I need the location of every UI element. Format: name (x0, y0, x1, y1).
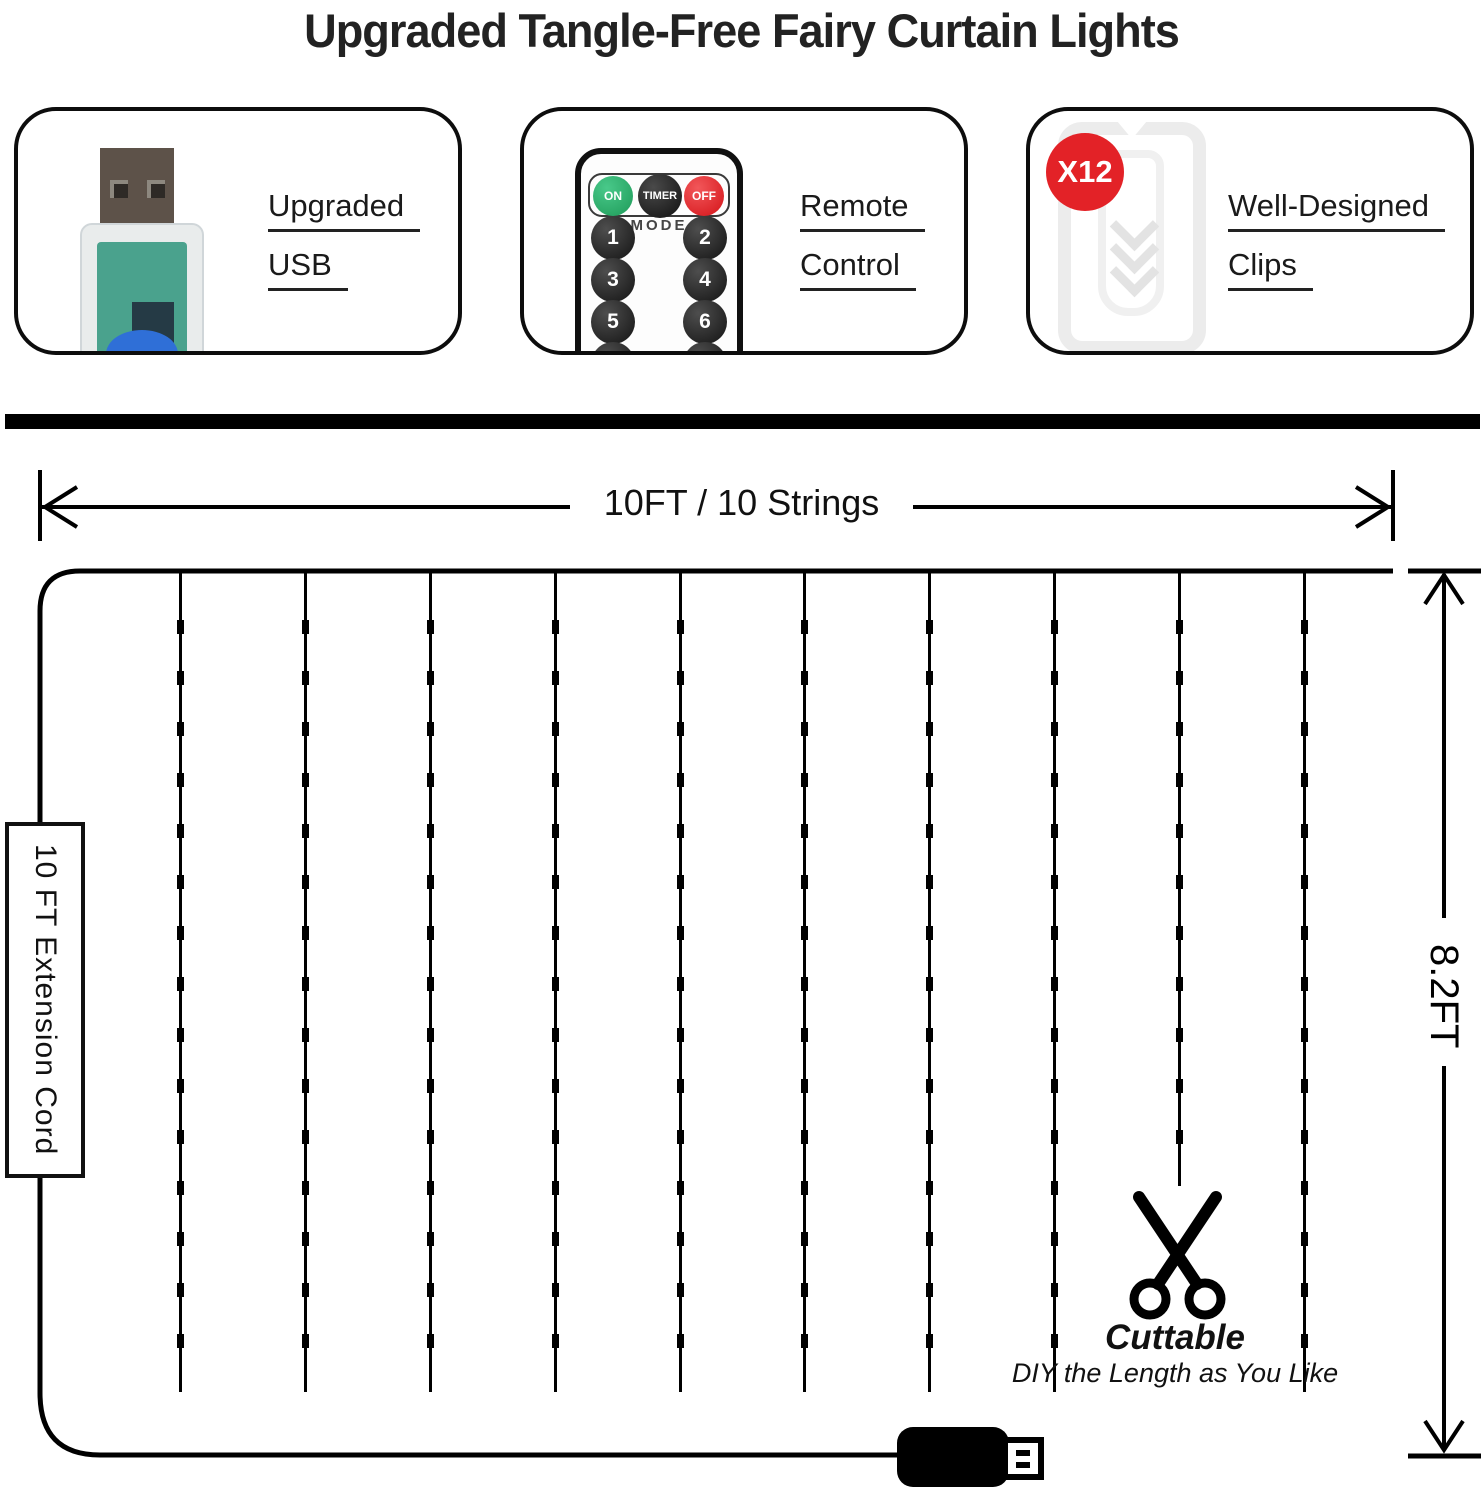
cuttable-subtitle: DIY the Length as You Like (985, 1358, 1365, 1389)
string-curtain (177, 570, 1308, 1392)
extension-cord-label-box: 10 FT Extension Cord (5, 822, 85, 1178)
light-string (1051, 570, 1058, 1392)
light-string (302, 570, 309, 1392)
light-string (177, 570, 184, 1392)
product-infographic: Upgraded Tangle-Free Fairy Curtain Light… (0, 0, 1483, 1487)
height-dimension-label: 8.2FT (1421, 936, 1466, 1056)
light-string (926, 570, 933, 1392)
extension-cord-label: 10 FT Extension Cord (28, 844, 62, 1155)
light-string (552, 570, 559, 1392)
light-string (801, 570, 808, 1392)
usb-plug-icon (897, 1427, 1041, 1487)
quantity-badge: X12 (1046, 133, 1124, 211)
light-string (1301, 570, 1308, 1392)
width-dimension-label: 10FT / 10 Strings (0, 482, 1483, 524)
cuttable-title: Cuttable (1025, 1318, 1325, 1358)
light-string (427, 570, 434, 1392)
light-string (1176, 570, 1183, 1186)
light-string (677, 570, 684, 1392)
